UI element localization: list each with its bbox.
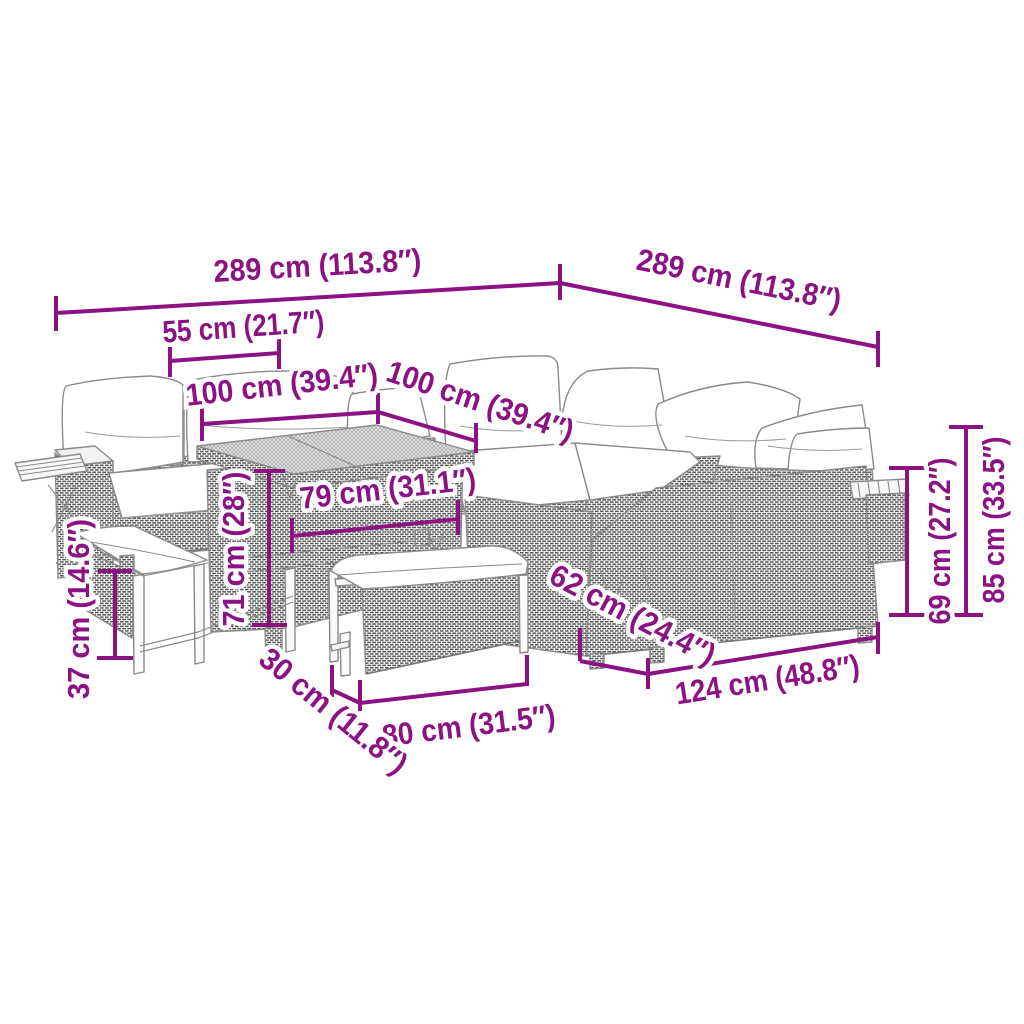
svg-text:71 cm (28″): 71 cm (28″) — [216, 472, 251, 627]
svg-text:37 cm (14.6″): 37 cm (14.6″) — [61, 519, 96, 699]
svg-text:69 cm (27.2″): 69 cm (27.2″) — [922, 458, 957, 625]
svg-text:85 cm (33.5″): 85 cm (33.5″) — [976, 437, 1011, 604]
